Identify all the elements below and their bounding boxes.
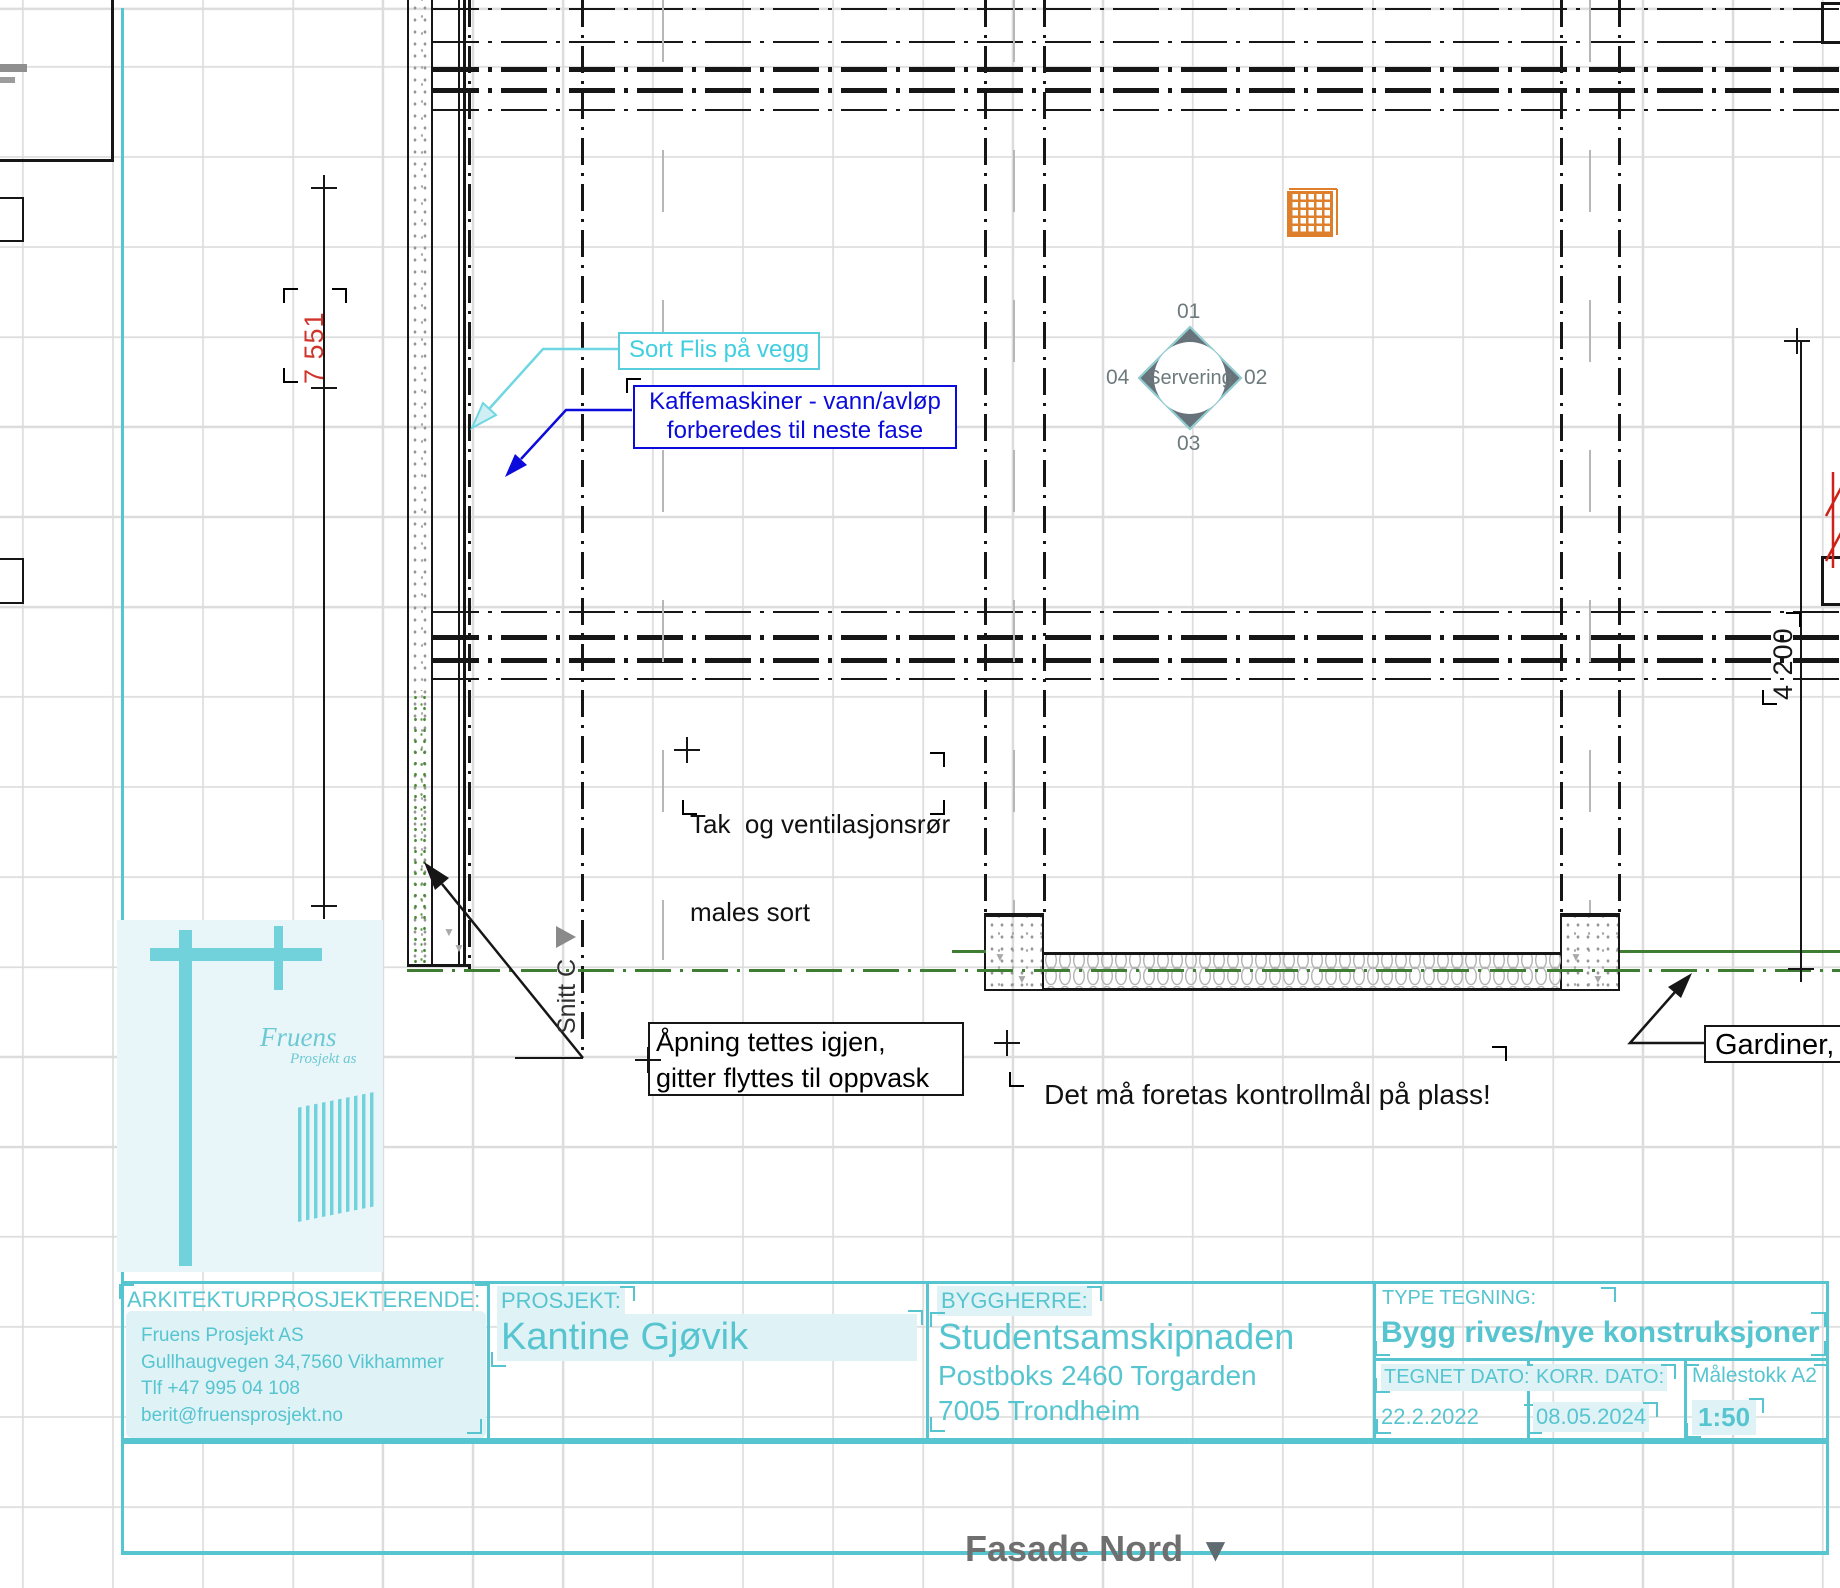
note-sort-flis[interactable]: Sort Flis på vegg bbox=[618, 332, 820, 370]
note-kontrollmal[interactable]: Det må foretas kontrollmål på plass! bbox=[1013, 1048, 1491, 1142]
fasade-nord-triangle-icon: ▼ bbox=[1199, 1531, 1232, 1568]
prosjekt-value[interactable]: Kantine Gjøvik bbox=[497, 1314, 917, 1361]
insert-tick bbox=[674, 737, 700, 763]
arch-info-box[interactable]: Fruens Prosjekt AS Gullhaugvegen 34,7560… bbox=[126, 1311, 486, 1438]
servering-label: Servering bbox=[1128, 367, 1252, 390]
pillar-line bbox=[1618, 0, 1621, 913]
roof-line bbox=[433, 88, 1840, 93]
insert-tick bbox=[994, 1030, 1020, 1056]
type-header: TYPE TEGNING: bbox=[1382, 1287, 1536, 1310]
byggherre-value[interactable]: Studentsamskipnaden Postboks 2460 Torgar… bbox=[938, 1316, 1294, 1428]
section-hook-line bbox=[515, 1057, 583, 1059]
mid-line bbox=[433, 658, 1840, 663]
edge-box-left-2 bbox=[0, 558, 24, 604]
servering-symbol[interactable]: Servering 01 02 03 04 bbox=[1138, 326, 1242, 430]
dimension-line-right[interactable] bbox=[1800, 340, 1802, 970]
titleblock-div bbox=[1373, 1281, 1376, 1441]
frame-left bbox=[121, 8, 124, 1553]
titleblock-div bbox=[487, 1281, 490, 1441]
ground-dashed-line bbox=[407, 969, 1840, 972]
pillar-line bbox=[1043, 0, 1046, 913]
pillar-line bbox=[1560, 0, 1563, 913]
pier-left bbox=[984, 913, 1044, 991]
texture-triangle-icon: ▼ bbox=[1592, 972, 1604, 986]
servering-num-bottom[interactable]: 03 bbox=[1177, 432, 1200, 456]
roof-line bbox=[433, 109, 1840, 111]
note-gardiner[interactable]: Gardiner, bbox=[1704, 1025, 1840, 1063]
ground-line-segment bbox=[1620, 950, 1840, 953]
dim-tick bbox=[1784, 328, 1810, 354]
servering-num-top[interactable]: 01 bbox=[1177, 300, 1200, 324]
texture-triangle-icon: ▼ bbox=[453, 941, 465, 955]
korr-label: KORR. DATO: bbox=[1533, 1364, 1667, 1391]
leader-line-gardiner bbox=[1630, 992, 1704, 1043]
dim-tick bbox=[311, 375, 337, 401]
logo-bar-horizontal bbox=[150, 948, 322, 961]
ground-line-segment bbox=[952, 950, 986, 953]
mid-line bbox=[433, 635, 1840, 640]
dim-tick bbox=[1788, 956, 1814, 982]
korr-value[interactable]: 08.05.2024 bbox=[1533, 1402, 1649, 1432]
texture-triangle-icon: ▼ bbox=[1570, 950, 1582, 964]
roof-line bbox=[433, 41, 1840, 43]
dimension-line-left[interactable] bbox=[323, 181, 325, 908]
frame-right bbox=[1826, 1281, 1829, 1555]
wall-green-marking bbox=[410, 690, 429, 965]
snitt-c-label[interactable]: Snitt C bbox=[553, 959, 582, 1034]
note-apning[interactable]: Åpning tettes igjen, gitter flyttes til … bbox=[648, 1022, 964, 1096]
roof-line bbox=[433, 67, 1840, 72]
scale-label: Målestokk A2 bbox=[1692, 1364, 1817, 1388]
centerline bbox=[662, 0, 664, 960]
leader-arrow-icon bbox=[505, 454, 527, 477]
grille-icon[interactable] bbox=[1287, 191, 1333, 237]
note-tak[interactable]: Tak og ventilasjonsrør males sort bbox=[690, 752, 950, 985]
texture-triangle-icon: ▼ bbox=[1016, 972, 1028, 986]
leader-line-kaffe bbox=[521, 410, 632, 459]
logo-wordmark: Fruens Prosjekt as bbox=[260, 1022, 357, 1068]
tegnet-label: TEGNET DATO: bbox=[1381, 1364, 1533, 1391]
logo-panel bbox=[117, 920, 383, 1272]
dim-tick bbox=[311, 893, 337, 919]
pillar-line bbox=[984, 0, 987, 913]
centerline bbox=[1589, 0, 1591, 913]
scale-value[interactable]: 1:50 bbox=[1692, 1400, 1756, 1435]
grille-edge bbox=[1336, 189, 1338, 235]
edge-box-right-2 bbox=[1821, 556, 1840, 606]
byggherre-header: BYGGHERRE: bbox=[937, 1286, 1092, 1316]
drawing-sheet: ▼ ▼ ▼ ▼ ▼ ▼ bbox=[0, 0, 1840, 1588]
snitt-c-triangle-icon bbox=[556, 926, 576, 948]
dimension-text-left[interactable]: 7 551 bbox=[299, 311, 330, 384]
titleblock-mid-right bbox=[1374, 1358, 1828, 1361]
texture-triangle-icon: ▼ bbox=[994, 950, 1006, 964]
centerline bbox=[1013, 0, 1015, 913]
tegnet-value[interactable]: 22.2.2022 bbox=[1381, 1404, 1479, 1430]
prosjekt-header: PROSJEKT: bbox=[497, 1286, 625, 1316]
wall-inner-line bbox=[463, 0, 466, 967]
servering-num-left[interactable]: 04 bbox=[1106, 366, 1129, 390]
section-line-snitt-c bbox=[581, 0, 584, 1058]
wall-face-line bbox=[468, 0, 471, 970]
leader-arrow-icon bbox=[1668, 973, 1692, 998]
edge-gray-mark bbox=[0, 64, 27, 72]
wall-base-line bbox=[407, 964, 471, 967]
grille-edge bbox=[1289, 188, 1337, 190]
roof-line bbox=[433, 8, 1840, 10]
note-kaffemaskiner[interactable]: Kaffemaskiner - vann/avløp forberedes ti… bbox=[633, 385, 957, 449]
logo-stripes bbox=[298, 1092, 374, 1222]
titleblock-top bbox=[121, 1281, 1828, 1284]
mid-line bbox=[433, 678, 1840, 680]
edge-gray-mark bbox=[0, 77, 15, 83]
mid-line bbox=[433, 611, 1840, 613]
corner-line-h bbox=[0, 159, 114, 162]
pier-right bbox=[1560, 913, 1620, 991]
titleblock-bottom bbox=[121, 1438, 1828, 1444]
texture-triangle-icon: ▼ bbox=[443, 925, 455, 939]
corner-line-v bbox=[111, 0, 114, 160]
red-edge-marks bbox=[1826, 472, 1840, 568]
leader-line-sort-flis bbox=[489, 349, 618, 409]
edge-box-left-1 bbox=[0, 197, 24, 242]
logo-bar-vertical bbox=[179, 930, 192, 1266]
type-value[interactable]: Bygg rives/nye konstruksjoner bbox=[1381, 1316, 1820, 1350]
insert-tick bbox=[635, 1047, 661, 1073]
titleblock-div bbox=[926, 1281, 929, 1441]
leader-arrow-icon bbox=[472, 403, 496, 428]
view-title: Fasade Nord ▼ bbox=[965, 1528, 1232, 1570]
dim-tick bbox=[311, 175, 337, 201]
arch-header: ARKITEKTURPROSJEKTERENDE: bbox=[127, 1287, 480, 1313]
logo-bar-cross bbox=[274, 926, 283, 990]
wall-inner-line bbox=[458, 0, 460, 967]
servering-num-right[interactable]: 02 bbox=[1244, 366, 1267, 390]
